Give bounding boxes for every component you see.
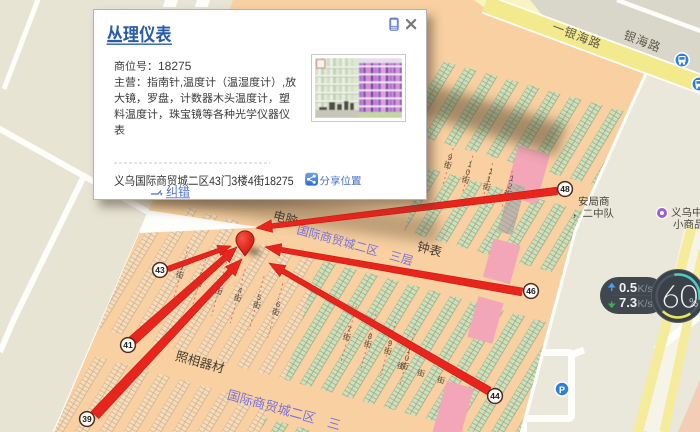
svg-text:K/s: K/s xyxy=(638,298,653,310)
svg-text:46: 46 xyxy=(526,286,536,296)
svg-text:39: 39 xyxy=(82,414,92,424)
svg-text:43: 43 xyxy=(155,265,165,275)
svg-text:44: 44 xyxy=(490,391,500,401)
svg-text:0.5: 0.5 xyxy=(619,280,637,295)
svg-text:7.3: 7.3 xyxy=(619,295,637,310)
svg-text:K/s: K/s xyxy=(638,283,653,295)
svg-text:41: 41 xyxy=(123,340,133,350)
svg-text:48: 48 xyxy=(560,184,570,194)
svg-text:P: P xyxy=(559,385,565,395)
